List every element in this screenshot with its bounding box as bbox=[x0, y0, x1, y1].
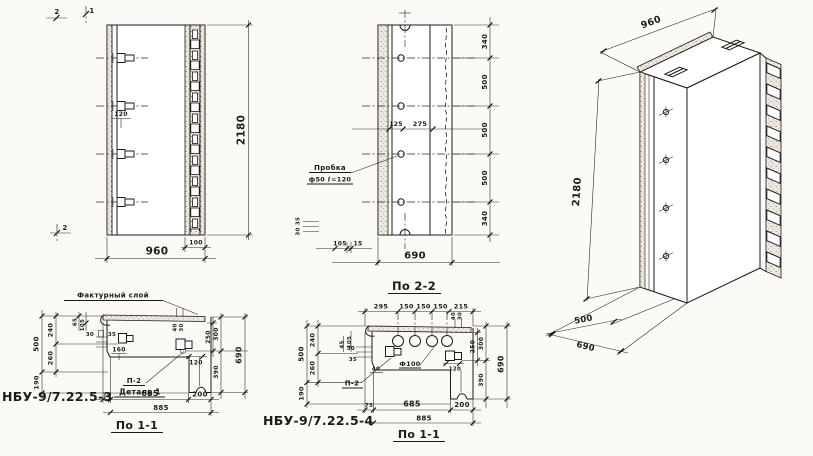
f100-label: Ф100 bbox=[399, 360, 420, 368]
facing-label: Фактурный слой bbox=[77, 292, 149, 300]
dim-height-2180: 2180 bbox=[207, 20, 253, 240]
keyway-slab-iso bbox=[760, 53, 781, 278]
block-front-face bbox=[687, 53, 760, 303]
dim-500-label: 500 bbox=[481, 122, 489, 138]
section-mark-label: 1 bbox=[89, 7, 94, 15]
iso-dim-2180: 2180 bbox=[571, 72, 640, 302]
plug-label-line1: Пробка bbox=[314, 164, 346, 172]
view-front-elevation: 120 2 1 2 960 100 2180 bbox=[46, 6, 253, 263]
iso-dim-500: 500 bbox=[546, 287, 674, 336]
dim-15-label: 15 bbox=[354, 241, 363, 248]
dim-250: 250 bbox=[470, 340, 477, 353]
dim-105: 105 bbox=[80, 319, 86, 331]
dim-200: 200 bbox=[454, 401, 470, 409]
facing-layer-strip bbox=[107, 25, 112, 235]
plan-4-title: По 1-1 bbox=[393, 428, 445, 442]
facing-slab-edge bbox=[640, 72, 645, 289]
dim-30-label: 30 bbox=[296, 227, 302, 235]
dim-340-label: 340 bbox=[481, 211, 489, 227]
block-code-4: НБУ-9/7.22.5-4 bbox=[263, 413, 373, 428]
dim-100-label: 100 bbox=[189, 240, 202, 247]
dim-215: 215 bbox=[454, 303, 469, 311]
dim-885: 885 bbox=[153, 404, 169, 412]
view-section-2-2: Пробка ф50 ℓ=120 125 275 340 500 500 500… bbox=[296, 10, 501, 294]
dim-260: 260 bbox=[309, 361, 317, 376]
dim-250: 250 bbox=[205, 330, 212, 343]
dim-500-label: 500 bbox=[481, 74, 489, 90]
dim-35: 35 bbox=[349, 357, 357, 363]
dims-right-4: 250 300 390 690 bbox=[462, 322, 511, 408]
plan-3-title: По 1-1 bbox=[111, 419, 163, 433]
dim-120-4: 120 bbox=[443, 361, 464, 373]
iso-2180-label: 2180 bbox=[571, 177, 584, 207]
view-plan-5-3: Фактурный слой П-2 Деталь 1 500 190 240 … bbox=[2, 292, 248, 433]
dims-40-30-top: 40 30 bbox=[451, 312, 464, 328]
dim-500: 500 bbox=[33, 336, 41, 352]
embed-insert-p2 bbox=[386, 347, 402, 357]
dim-690: 690 bbox=[235, 346, 244, 364]
dim-500-label: 500 bbox=[481, 170, 489, 186]
iso-dim-690: 690 bbox=[548, 303, 687, 355]
view-title: По 1-1 bbox=[116, 419, 158, 432]
blueprint-svg: 120 2 1 2 960 100 2180 bbox=[0, 0, 813, 456]
dim-120-label: 120 bbox=[189, 360, 202, 367]
dim-30: 30 bbox=[86, 332, 94, 338]
iso-960-label: 960 bbox=[639, 14, 662, 32]
view-title: По 2-2 bbox=[392, 279, 436, 293]
facing-callout: Фактурный слой bbox=[64, 292, 198, 315]
keyway-chain bbox=[191, 29, 200, 231]
column-plan bbox=[189, 317, 211, 393]
p2-label: П-2 bbox=[345, 380, 360, 388]
dims-30-35: 30 35 bbox=[86, 331, 116, 339]
p2-label: П-2 bbox=[127, 377, 142, 385]
dim-190: 190 bbox=[33, 375, 41, 390]
dim-200: 200 bbox=[192, 391, 208, 399]
dim-65: 65 bbox=[73, 318, 79, 326]
section-outline bbox=[378, 25, 452, 235]
embed-insert-right bbox=[446, 351, 462, 361]
dim-45: 45 bbox=[340, 340, 346, 348]
dim-35: 35 bbox=[108, 332, 116, 338]
dim-120-3: 120 bbox=[186, 354, 207, 367]
iso-500-label: 500 bbox=[574, 313, 594, 326]
dim-160-label: 160 bbox=[112, 347, 125, 354]
dim-685: 685 bbox=[141, 389, 159, 398]
section-mark-1-top: 1 bbox=[83, 6, 95, 23]
dim-690: 690 bbox=[497, 355, 506, 373]
dim-295: 295 bbox=[374, 303, 389, 311]
section-mark-label: 2 bbox=[62, 224, 67, 232]
plug-label-line2: ф50 ℓ=120 bbox=[309, 176, 352, 184]
dim-340-label: 340 bbox=[481, 34, 489, 50]
dim-105-label: 105 bbox=[333, 241, 346, 248]
section-mark-label: 2 bbox=[54, 8, 59, 16]
dim-150: 150 bbox=[416, 303, 431, 311]
dim-120-label: 120 bbox=[114, 111, 127, 118]
dim-300: 300 bbox=[213, 327, 220, 340]
dim-30: 30 bbox=[347, 346, 355, 352]
section-mark-2-bottom: 2 bbox=[50, 224, 71, 241]
dim-685: 685 bbox=[403, 400, 421, 409]
dim-right-chain: 340 500 500 500 340 bbox=[454, 17, 499, 242]
embed-insert-p2 bbox=[119, 334, 134, 344]
dim-30: 30 bbox=[458, 312, 464, 320]
view-plan-5-4: 295 150 150 150 215 Ф100 П-2 500 190 240… bbox=[263, 303, 511, 442]
dim-2180-label: 2180 bbox=[236, 115, 248, 145]
dim-190: 190 bbox=[298, 386, 306, 401]
f100-callout: Ф100 bbox=[399, 347, 434, 368]
dim-300: 300 bbox=[478, 337, 485, 350]
dim-885: 885 bbox=[416, 415, 432, 423]
dim-keyway-100: 100 bbox=[181, 237, 211, 252]
dim-120-label: 120 bbox=[449, 367, 461, 373]
dim-125-label: 125 bbox=[389, 121, 402, 128]
dim-105-15: 105 15 bbox=[316, 241, 372, 254]
drawing-sheet: 120 2 1 2 960 100 2180 bbox=[0, 0, 813, 456]
dim-35-label: 35 bbox=[296, 217, 302, 225]
dim-390: 390 bbox=[213, 365, 220, 378]
dim-75: 75 bbox=[365, 403, 373, 409]
block-code-3: НБУ-9/7.22.5-3 bbox=[2, 389, 112, 404]
block-side-face bbox=[640, 72, 687, 303]
view-isometric: 2180 960 500 690 bbox=[546, 8, 781, 356]
dim-260: 260 bbox=[47, 351, 55, 366]
iso-690-label: 690 bbox=[575, 340, 596, 354]
dim-160: 160 bbox=[112, 347, 127, 361]
section-mark-2-top: 2 bbox=[46, 8, 67, 21]
dim-275-label: 275 bbox=[413, 120, 428, 128]
dim-150: 150 bbox=[399, 303, 414, 311]
dim-390: 390 bbox=[478, 373, 485, 386]
dim-500: 500 bbox=[298, 346, 306, 362]
dims-right-3: 250 300 390 690 bbox=[186, 313, 248, 399]
dim-240: 240 bbox=[47, 323, 55, 338]
facing-band bbox=[368, 326, 471, 333]
dim-690-label: 690 bbox=[404, 251, 426, 262]
dim-150: 150 bbox=[433, 303, 448, 311]
dim-40: 40 bbox=[451, 312, 457, 320]
dims-left-4: 500 190 240 260 bbox=[298, 320, 452, 408]
dim-30: 30 bbox=[179, 323, 185, 331]
dim-ledge-30-35: 35 30 bbox=[296, 217, 320, 236]
facing-band bbox=[103, 315, 205, 322]
facing-layer-section bbox=[378, 25, 388, 235]
view-title: По 1-1 bbox=[398, 428, 440, 441]
section-2-2-title: По 2-2 bbox=[388, 279, 441, 294]
dim-40: 40 bbox=[173, 323, 179, 331]
dims-bottom-4: 75 685 200 885 bbox=[357, 332, 481, 426]
dims-65-105: 65 105 bbox=[73, 312, 89, 331]
dim-960-label: 960 bbox=[146, 246, 169, 258]
dim-240: 240 bbox=[309, 333, 317, 348]
